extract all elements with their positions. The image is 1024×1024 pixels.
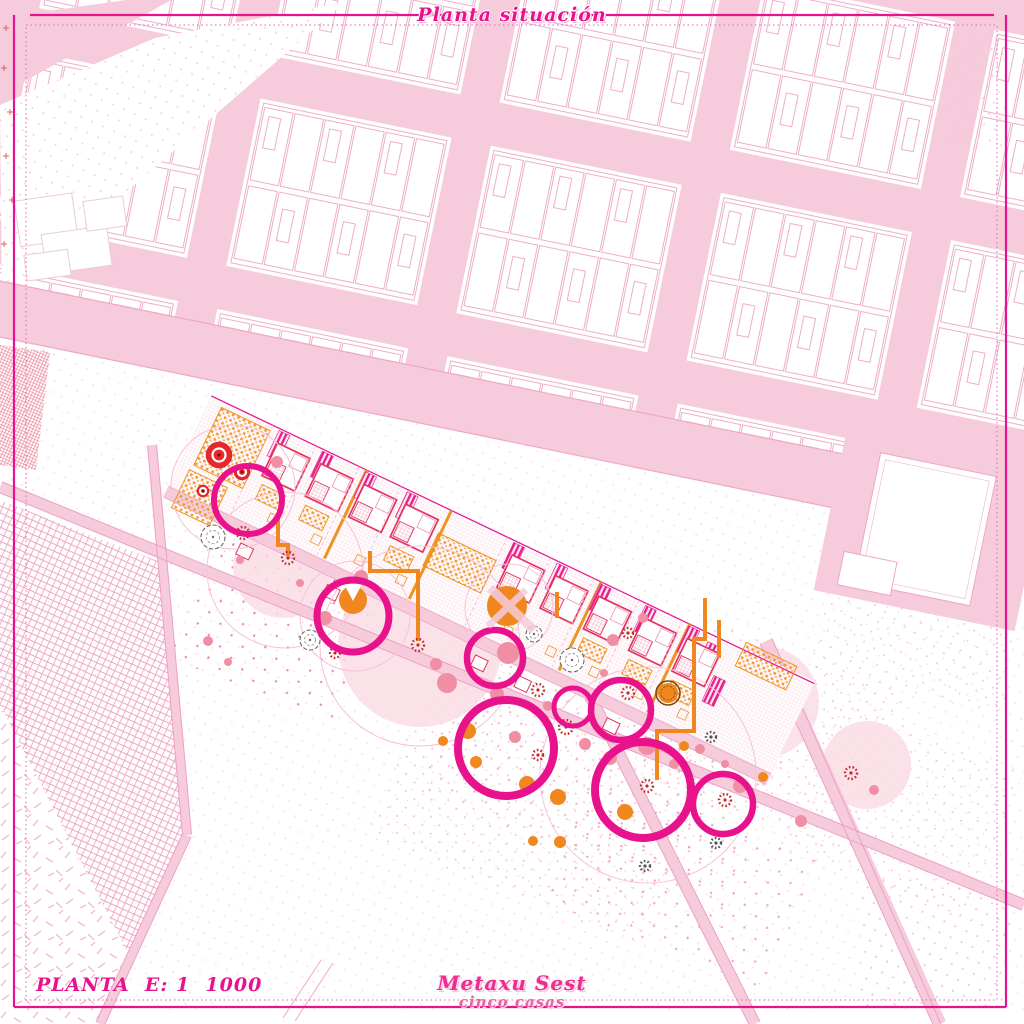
sheet-title: Planta situación <box>0 4 1024 26</box>
site-plan-sheet: Planta situación PLANTA E: 1 1000 Metaxu… <box>0 0 1024 1024</box>
studio-name: Metaxu Sest <box>0 972 1024 994</box>
project-name: cinco casas <box>0 994 1024 1011</box>
site-plan-drawing <box>0 0 1024 1024</box>
studio-signature: Metaxu Sest cinco casas <box>0 972 1024 1011</box>
